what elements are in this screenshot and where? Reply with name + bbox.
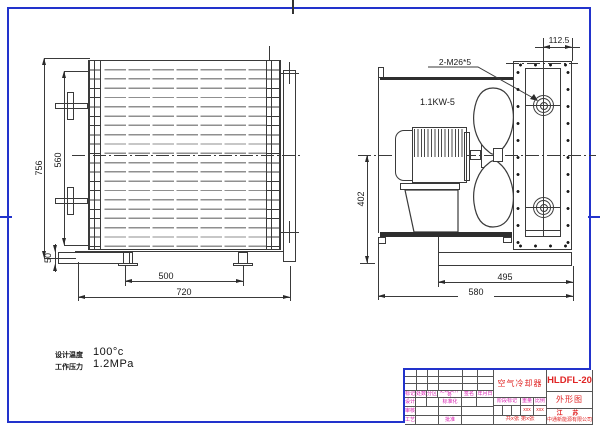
bolt-row-left xyxy=(515,64,521,248)
drawing-sheet: 756 560 50 500 720 xyxy=(0,0,600,431)
rev-header-docno: 更改文件号 xyxy=(438,391,462,398)
weight-value: xxx xyxy=(521,406,534,416)
dim-base-width: 495 xyxy=(487,273,523,282)
dim-arrow xyxy=(543,45,550,49)
company-region: 江 苏 xyxy=(557,411,583,417)
motor-power-label: 1.1KW-5 xyxy=(420,97,455,107)
dim-arrow xyxy=(78,295,85,299)
rev-header-zone: 分区 xyxy=(427,391,438,398)
working-pressure-label: 工作压力 xyxy=(55,362,83,372)
panel-inner-bottom-line xyxy=(525,230,561,231)
sig-cell xyxy=(427,398,439,407)
base-tab-right xyxy=(503,237,512,243)
scale-label: 比例 xyxy=(534,398,547,406)
dim-495-line xyxy=(438,282,573,283)
base-tab-left xyxy=(378,237,386,244)
pipe-fitting-bottom-inner xyxy=(540,204,548,212)
rev-header-date: 年月日 xyxy=(477,391,494,398)
dim-arrow xyxy=(62,238,66,245)
dim-560-ext-bottom xyxy=(64,245,88,246)
scale-value: xxx xyxy=(534,406,547,416)
weight-label: 重量 xyxy=(521,398,534,406)
rev-header-mark: 标记 xyxy=(405,391,416,398)
role-approve: 批准 xyxy=(439,416,462,425)
design-temp-label: 设计温度 xyxy=(55,350,83,360)
center-tick-top xyxy=(292,0,294,14)
sig-cell xyxy=(462,416,494,425)
mounting-pin-top xyxy=(55,103,88,109)
sig-cell xyxy=(477,398,494,407)
fan-shaft-nut xyxy=(493,148,503,162)
dim-overall-depth: 580 xyxy=(458,288,494,297)
manifold-cross-top-h xyxy=(281,73,299,74)
dim-580-ext-left xyxy=(378,240,379,300)
design-temp-value: 100°c xyxy=(93,346,124,358)
mounting-pin-bottom xyxy=(55,198,88,204)
sig-cell xyxy=(416,398,427,407)
sig-cell xyxy=(462,398,477,407)
title-block: 标记 处数 分区 更改文件号 签名 年月日 设计 标准化 审核 工艺 批准 空气… xyxy=(403,368,591,423)
sig-cell xyxy=(439,407,462,416)
base-bar xyxy=(380,232,512,237)
dim-560-ext-top xyxy=(64,71,88,72)
dim-500-ext-left xyxy=(125,266,126,286)
lower-base-plate xyxy=(438,252,572,266)
thread-callout-label: 2-M26*5 xyxy=(430,57,480,67)
dim-arrow xyxy=(438,280,445,284)
stage-cell xyxy=(494,406,503,416)
role-check: 审核 xyxy=(405,407,416,416)
dim-arrow xyxy=(566,294,573,298)
view-name: 外形图 xyxy=(547,392,593,409)
dim-1125-line xyxy=(535,47,580,48)
angle-foot-left-flange xyxy=(118,263,138,266)
dim-foot-spacing: 500 xyxy=(148,272,184,281)
sheet-info: 共x张 第x张 xyxy=(494,416,547,425)
sig-cell xyxy=(416,407,439,416)
rev-header-count: 处数 xyxy=(416,391,427,398)
fan-blade-top xyxy=(474,88,514,154)
dim-center-height: 402 xyxy=(352,188,370,210)
dim-arrow xyxy=(125,279,132,283)
dim-overall-height: 756 xyxy=(30,157,48,179)
dim-756-ext-top xyxy=(44,58,90,59)
header-tick xyxy=(269,46,270,60)
manifold-cross-bottom-h xyxy=(281,232,299,233)
dim-720-line xyxy=(78,297,290,298)
model-number: HLDFL-20 xyxy=(547,370,593,392)
fan-blade-bottom xyxy=(474,161,514,227)
dim-overall-width: 720 xyxy=(166,288,202,297)
base-connector xyxy=(438,237,439,252)
center-tick-left xyxy=(0,216,12,218)
rev-header-sign: 签名 xyxy=(462,391,477,398)
dim-500-ext-right xyxy=(243,266,244,286)
panel-top-centerline xyxy=(506,63,578,64)
dim-foot-height: 50 xyxy=(39,247,57,269)
dim-500-line xyxy=(125,281,243,282)
dim-arrow xyxy=(565,45,572,49)
role-standard: 标准化 xyxy=(439,398,462,407)
coil-centerline xyxy=(72,155,302,156)
dim-tube-height: 560 xyxy=(49,149,67,171)
working-pressure-value: 1.2MPa xyxy=(93,358,134,370)
dim-720-ext-right xyxy=(290,266,291,301)
dim-arrow xyxy=(283,295,290,299)
stage-cell xyxy=(503,406,512,416)
role-process: 工艺 xyxy=(405,416,416,425)
product-name: 空气冷却器 xyxy=(494,370,547,398)
company-cell: 江 苏 中通新能源有限公司 xyxy=(547,409,593,425)
bolt-row-bottom xyxy=(513,243,572,249)
stage-label: 阶段标记 xyxy=(494,398,521,406)
dim-arrow xyxy=(62,71,66,78)
dim-arrow xyxy=(378,294,385,298)
dim-arrow xyxy=(236,279,243,283)
sig-cell xyxy=(462,407,494,416)
motor-stand xyxy=(405,190,458,232)
pipe-fitting-top-inner xyxy=(540,102,548,110)
dim-495-ext-right xyxy=(573,266,574,301)
revision-grid xyxy=(405,370,494,391)
sig-cell xyxy=(416,416,439,425)
dim-arrow xyxy=(42,58,46,65)
dim-flange-offset: 112.5 xyxy=(541,36,577,45)
dim-arrow xyxy=(365,155,369,162)
stage-cell xyxy=(512,406,521,416)
role-design: 设计 xyxy=(405,398,416,407)
dim-402-ext-bottom xyxy=(360,263,375,264)
bolt-row-right xyxy=(565,64,571,248)
company-name: 中通新能源有限公司 xyxy=(547,418,592,423)
dim-arrow xyxy=(365,256,369,263)
dim-arrow xyxy=(566,280,573,284)
